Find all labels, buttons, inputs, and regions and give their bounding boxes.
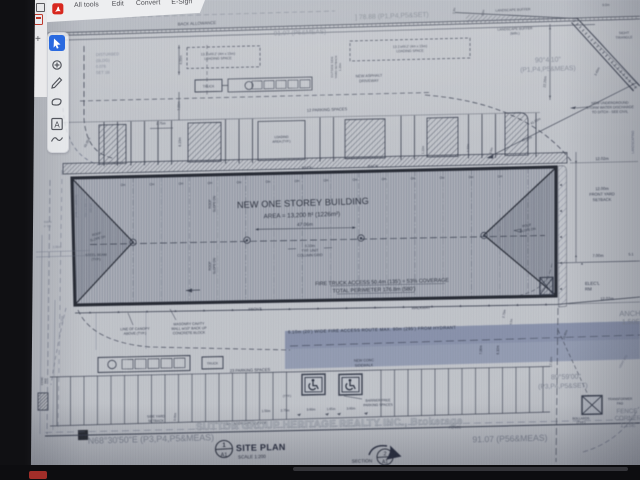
svg-text:12.02m: 12.02m [595,156,609,161]
svg-text:CONCRETE BLOCK: CONCRETE BLOCK [173,331,206,336]
svg-text:OH: OH [237,180,242,184]
svg-text:1.50E: 1.50E [622,319,640,326]
svg-text:TYP. UNIT: TYP. UNIT [301,248,319,252]
svg-text:1.20m: 1.20m [338,62,342,71]
svg-text:(TYP.): (TYP.) [91,257,100,261]
svg-text:3.05m: 3.05m [173,412,178,421]
svg-text:89°59'00": 89°59'00" [551,373,582,382]
svg-text:ABOVE (TYP.): ABOVE (TYP.) [124,331,147,336]
svg-text:OH: OH [121,183,126,187]
svg-text:6.10m: 6.10m [496,345,500,354]
svg-text:7.00m: 7.00m [592,253,604,258]
svg-text:WALKWAY: WALKWAY [411,306,430,311]
svg-text:3.60m: 3.60m [347,406,356,410]
svg-text:(TYP.): (TYP.) [283,394,291,398]
svg-text:OH: OH [150,182,155,186]
svg-text:LANDSCAPING: LANDSCAPING [631,130,635,153]
svg-text:1.65m: 1.65m [327,407,336,411]
svg-text:OH: OH [353,178,358,182]
svg-text:2.75m: 2.75m [156,121,166,125]
svg-text:2.86m: 2.86m [53,245,62,249]
svg-text:MAIN: MAIN [44,220,52,224]
svg-text:(BLDG): (BLDG) [96,58,110,63]
svg-text:PAD: PAD [617,401,624,405]
svg-text:SITE PLAN: SITE PLAN [236,442,286,453]
svg-text:17.11m: 17.11m [549,356,554,367]
svg-text:OH: OH [498,174,503,178]
svg-text:OH: OH [440,176,445,180]
svg-text:ROOF: ROOF [208,199,212,208]
svg-text:1.22m: 1.22m [421,145,425,154]
svg-text:1.15E: 1.15E [620,423,636,429]
svg-text:2.75m: 2.75m [281,408,290,412]
svg-text:P TO: P TO [44,224,52,228]
svg-text:0.076: 0.076 [96,64,107,69]
svg-text:OH: OH [469,175,474,179]
svg-text:(P3,P4,P5&SET): (P3,P4,P5&SET) [538,382,588,390]
svg-text:A: A [54,121,60,130]
svg-text:DRIVEWAY: DRIVEWAY [359,79,379,84]
svg-text:TO DITCH - SEE CIVIL: TO DITCH - SEE CIVIL [592,110,628,115]
svg-text:COLUMN GRID: COLUMN GRID [297,253,323,258]
svg-text:ELEC'L: ELEC'L [585,281,600,286]
svg-text:OH: OH [266,180,271,184]
svg-text:OH: OH [382,177,387,181]
svg-text:SET 1B: SET 1B [96,70,110,75]
svg-text:NEW CONC: NEW CONC [354,358,374,363]
svg-text:6.10m: 6.10m [178,137,182,146]
svg-text:TRUCK: TRUCK [207,361,219,365]
svg-text:OH: OH [295,179,300,183]
svg-text:SECTION: SECTION [352,458,373,463]
svg-text:A1: A1 [221,453,228,459]
svg-text:DISTURBED: DISTURBED [96,51,119,57]
svg-text:RM: RM [585,286,592,291]
svg-text:OH: OH [208,181,213,185]
svg-text:BACK: BACK [302,166,313,170]
svg-text:PAD: PAD [44,378,48,384]
svg-text:(TYP.): (TYP.) [577,420,586,424]
svg-text:226 LH: 226 LH [89,203,93,212]
svg-text:1.32m: 1.32m [466,143,470,152]
svg-text:5.1: 5.1 [628,252,633,256]
svg-text:SLOPE DN: SLOPE DN [213,257,217,274]
svg-text:CORNER: CORNER [615,415,640,422]
svg-text:7.06m: 7.06m [479,345,483,354]
svg-text:12.00m: 12.00m [595,186,609,191]
svg-text:6.10m: 6.10m [305,244,315,248]
svg-text:226 LH 226 LH: 226 LH 226 LH [84,199,88,218]
svg-text:ANCH: ANCH [619,309,640,318]
svg-text:SETBACK: SETBACK [148,419,165,423]
svg-text:FENCE: FENCE [449,425,462,429]
svg-text:PARKING SPACES: PARKING SPACES [363,403,393,408]
svg-text:SLOPE DN: SLOPE DN [213,195,217,212]
svg-text:TRUCK: TRUCK [203,84,216,88]
svg-text:OH: OH [324,178,329,182]
svg-text:12.02m: 12.02m [600,296,614,301]
svg-text:LOADING SPACE: LOADING SPACE [396,49,424,54]
svg-text:9.0m: 9.0m [602,3,610,7]
svg-text:SIDEWALK: SIDEWALK [355,363,374,368]
svg-text:OH: OH [179,182,184,186]
svg-text:BACK: BACK [368,164,379,168]
svg-text:(MIN.): (MIN.) [510,31,520,35]
svg-text:47.06m: 47.06m [297,222,313,228]
svg-text:ROOF: ROOF [208,261,212,270]
svg-text:90°4'10": 90°4'10" [535,56,562,65]
svg-text:LOADING SPACE: LOADING SPACE [204,56,232,61]
svg-text:FRONT: FRONT [248,307,262,311]
svg-text:91.07 (P56&MEAS): 91.07 (P56&MEAS) [472,433,547,445]
svg-text:AREA (TYP.): AREA (TYP.) [272,139,290,143]
svg-text:SETBACK: SETBACK [593,197,612,202]
svg-text:1.50m: 1.50m [262,409,271,413]
svg-text:OH: OH [411,176,416,180]
svg-text:7.11m: 7.11m [60,315,64,324]
svg-text:4.00m: 4.00m [179,55,183,64]
svg-text:2: 2 [383,452,386,458]
svg-text:3.60m: 3.60m [307,407,316,411]
svg-text:TRIANGLE: TRIANGLE [615,35,633,40]
svg-text:(P75.44m&MEAS): (P75.44m&MEAS) [75,195,79,218]
svg-text:SCALE 1:200: SCALE 1:200 [238,454,266,460]
